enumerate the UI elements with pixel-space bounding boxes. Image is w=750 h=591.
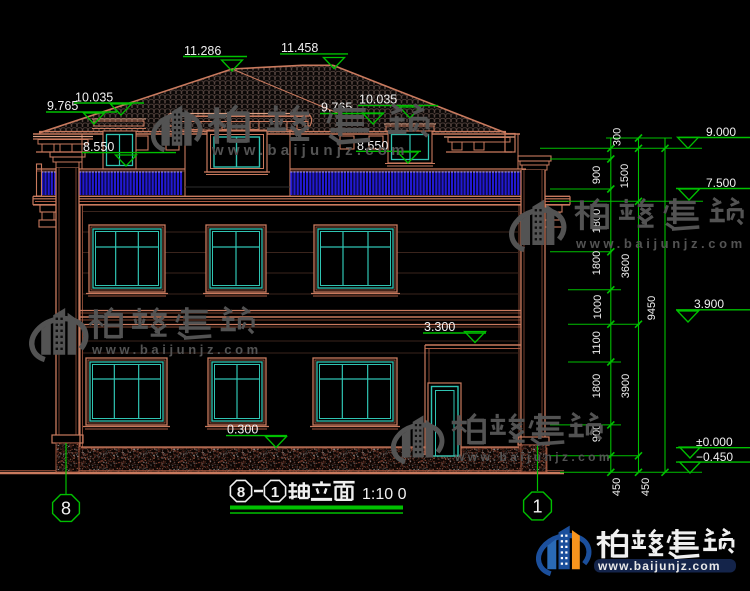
svg-text:1: 1: [271, 484, 279, 501]
svg-text:9450: 9450: [646, 296, 658, 320]
svg-text:±0.000: ±0.000: [696, 435, 733, 449]
svg-text:1800: 1800: [591, 251, 603, 275]
svg-text:1500: 1500: [619, 164, 631, 188]
svg-text:1800: 1800: [591, 374, 603, 398]
svg-text:www.baijunjz.com: www.baijunjz.com: [454, 450, 613, 464]
svg-text:1:10 0: 1:10 0: [362, 486, 407, 503]
svg-text:300: 300: [612, 128, 624, 146]
svg-text:0.300: 0.300: [227, 423, 258, 437]
svg-text:1000: 1000: [592, 295, 604, 319]
svg-text:10.035: 10.035: [359, 93, 397, 107]
svg-text:11.458: 11.458: [281, 41, 318, 55]
svg-text:www.baijunjz.com: www.baijunjz.com: [597, 559, 721, 573]
svg-text:www.baijunjz.com: www.baijunjz.com: [211, 142, 409, 159]
svg-text:450: 450: [611, 478, 623, 496]
svg-text:1: 1: [532, 497, 542, 517]
svg-text:8.550: 8.550: [83, 140, 114, 154]
svg-text:8: 8: [61, 499, 71, 519]
svg-text:3900: 3900: [620, 374, 632, 398]
svg-text:3.300: 3.300: [424, 320, 455, 334]
svg-text:3.900: 3.900: [694, 297, 724, 311]
svg-text:3600: 3600: [620, 254, 632, 278]
svg-text:9.765: 9.765: [47, 99, 78, 113]
svg-text:8: 8: [237, 484, 245, 501]
svg-text:9.765: 9.765: [321, 101, 352, 115]
svg-text:www.baijunjz.com: www.baijunjz.com: [575, 236, 746, 251]
svg-text:450: 450: [640, 478, 652, 496]
svg-text:900: 900: [591, 166, 603, 184]
svg-text:1100: 1100: [591, 331, 603, 355]
svg-text:www.baijunjz.com: www.baijunjz.com: [91, 342, 262, 357]
